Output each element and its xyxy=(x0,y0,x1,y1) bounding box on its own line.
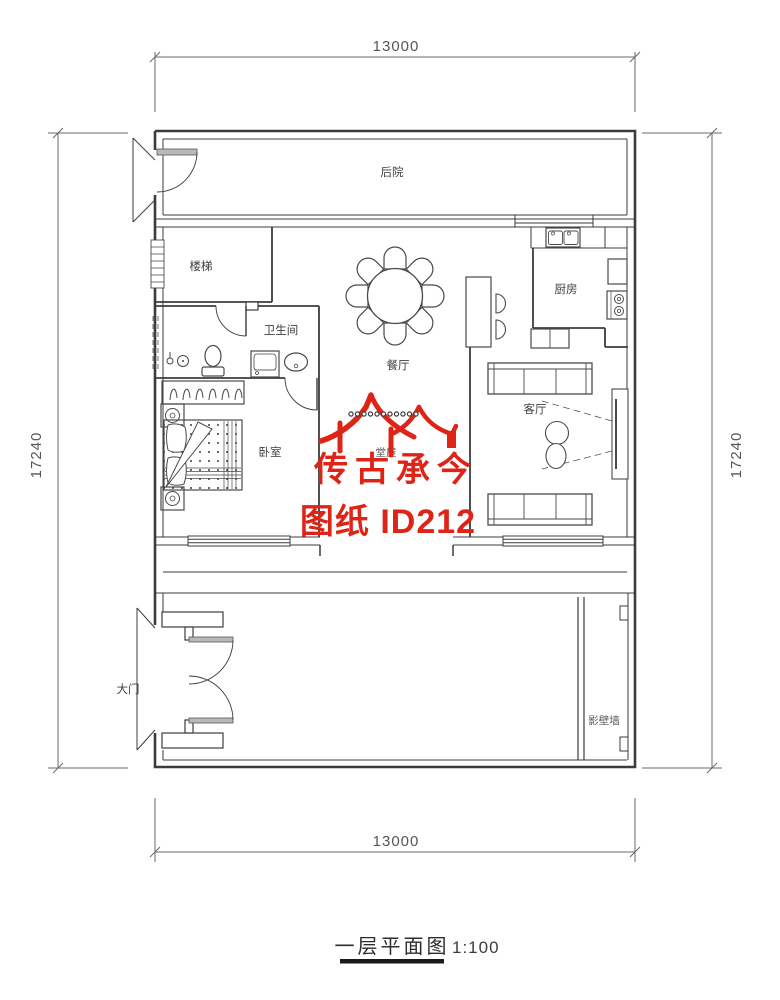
dimension-bottom: 13000 xyxy=(150,798,640,862)
dimension-left: 17240 xyxy=(28,128,128,773)
wardrobe xyxy=(162,381,244,404)
screen-wall-label: 影壁墙 xyxy=(588,714,620,727)
dining-label: 餐厅 xyxy=(387,358,410,372)
bedroom-furniture xyxy=(161,381,244,510)
sofa-top xyxy=(488,363,592,394)
dining-table xyxy=(368,269,423,324)
dimension-left-value: 17240 xyxy=(28,432,45,479)
toilet xyxy=(202,346,224,377)
backyard-label: 后院 xyxy=(381,165,404,179)
living-south-window xyxy=(503,536,603,546)
watermark-sheet-id: 图纸 ID212 xyxy=(300,503,476,541)
sink xyxy=(546,228,580,247)
bed xyxy=(164,420,242,490)
title-underline xyxy=(340,959,444,964)
main-gate xyxy=(137,608,233,750)
bedroom-south-window xyxy=(188,536,290,546)
watermark-brand-text: 传古承今 xyxy=(313,450,478,489)
dimension-top-value: 13000 xyxy=(373,38,420,55)
north-wall xyxy=(155,215,635,227)
dimension-right: 17240 xyxy=(642,128,745,773)
bedroom-label: 卧室 xyxy=(259,445,282,459)
stairs-label: 楼梯 xyxy=(190,259,213,273)
kitchen-label: 厨房 xyxy=(555,283,578,296)
floor-plan-drawing: 13000 13000 17240 17240 xyxy=(0,0,780,1000)
screen-wall xyxy=(578,597,628,760)
coffee-table xyxy=(546,422,569,469)
bathroom-label: 卫生间 xyxy=(264,323,299,337)
bathroom-door xyxy=(216,306,246,336)
kitchen-north-window xyxy=(515,215,593,227)
gate-frame xyxy=(137,608,155,750)
main-gate-label: 大门 xyxy=(117,682,140,696)
washing-machine xyxy=(251,351,279,377)
bathroom-door-stub xyxy=(246,302,258,310)
bedroom-door xyxy=(285,378,317,410)
base-cabinet xyxy=(531,329,569,348)
living-furniture xyxy=(488,363,628,525)
dimension-bottom-value: 13000 xyxy=(373,833,420,850)
drawing-title: 一层平面图 xyxy=(335,936,450,958)
dimension-top: 13000 xyxy=(150,38,640,112)
drawing-scale: 1:100 xyxy=(452,938,500,957)
hall-door-jambs xyxy=(320,545,453,556)
side-gate-frame xyxy=(133,138,155,222)
floor-plan-page: 13000 13000 17240 17240 xyxy=(0,0,780,1000)
fridge xyxy=(608,259,627,284)
porch-edge-lines xyxy=(155,572,635,593)
title-block: 一层平面图 1:100 xyxy=(335,936,500,964)
bar-table xyxy=(466,277,491,347)
bar-chair xyxy=(496,320,506,339)
watermark: 传古承今 图纸 ID212 xyxy=(300,395,478,541)
bar-chair xyxy=(496,294,506,313)
dimension-right-value: 17240 xyxy=(728,432,745,479)
living-label: 客厅 xyxy=(524,402,547,416)
roof-logo-icon xyxy=(321,395,456,455)
tv-unit xyxy=(612,389,628,479)
dining-set xyxy=(346,247,444,345)
sofa-bottom xyxy=(488,494,592,525)
kitchen-fixtures xyxy=(466,228,627,348)
stove xyxy=(607,291,627,319)
washbasin xyxy=(285,353,308,371)
bathroom-fixtures xyxy=(167,346,308,378)
